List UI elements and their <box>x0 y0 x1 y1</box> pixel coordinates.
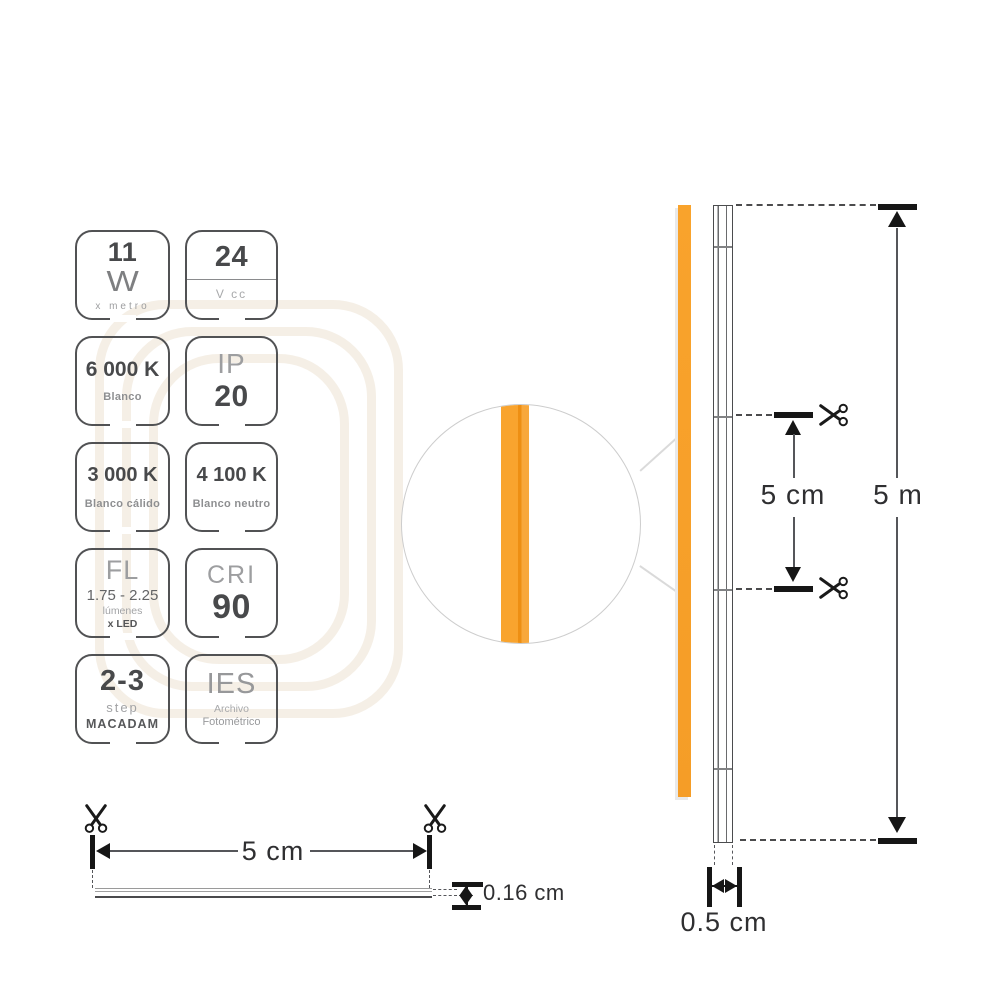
dim-5m-label: 5 m <box>868 479 928 511</box>
spec-badge-grid: 11 W x metro 24 V cc 6 000 K Blanco IP 2… <box>75 230 278 744</box>
magnifier-circle <box>401 404 641 644</box>
dim-5m-line <box>896 517 898 817</box>
dim-width-arrow-left <box>712 879 724 893</box>
cct-6000-value: 6 000 K <box>86 359 160 380</box>
led-strip-front <box>678 205 691 797</box>
dim-side-extension <box>92 870 93 888</box>
flux-caption2: x LED <box>108 619 138 630</box>
cri-value: 90 <box>212 590 251 624</box>
voltage-caption: V cc <box>216 288 247 300</box>
dim-5cm-arrow-up <box>785 420 801 435</box>
dim-5cm-label: 5 cm <box>758 479 828 511</box>
badge-luminous-flux: FL 1.75 - 2.25 lúmenes x LED <box>75 548 170 638</box>
badge-cri: CRI 90 <box>185 548 278 638</box>
dim-width-extension <box>714 845 715 865</box>
dashed-line-cut-top <box>736 414 772 416</box>
power-unit: W <box>106 268 138 297</box>
dim-width-extension <box>732 845 733 865</box>
dashed-line-bottom <box>740 839 876 841</box>
badge-ies-file: IES Archivo Fotométrico <box>185 654 278 744</box>
dim-width-arrow-right <box>725 879 737 893</box>
dim-5cm-line <box>793 434 795 478</box>
dim-width-right-bar <box>737 867 742 907</box>
dim-side-line <box>310 850 414 852</box>
macadam-value: 2-3 <box>100 667 145 696</box>
dim-side-left-bar <box>90 835 95 869</box>
dim-5m-bottom-tick <box>878 838 917 844</box>
scissors-icon <box>819 400 849 430</box>
dim-5cm-bottom-tick <box>774 586 813 592</box>
flux-value: 1.75 - 2.25 <box>87 588 159 603</box>
dim-5m-line <box>896 228 898 478</box>
dim-thickness-bottom-bar <box>452 905 481 910</box>
strip-joint-mark <box>714 416 732 418</box>
scissors-icon <box>420 804 450 834</box>
strip-joint-mark <box>714 589 732 591</box>
badge-cct-4100k: 4 100 K Blanco neutro <box>185 442 278 532</box>
cct-4100-value: 4 100 K <box>196 465 266 485</box>
dim-5m-arrow-down <box>888 817 906 833</box>
dim-side-arrow-right <box>413 843 427 859</box>
dim-thickness-label: 0.16 cm <box>483 880 565 906</box>
dim-5cm-arrow-down <box>785 567 801 582</box>
macadam-caption: step <box>106 701 139 714</box>
dim-5cm-top-tick <box>774 412 813 418</box>
magnifier-callout-line <box>640 565 679 593</box>
dim-5m-top-tick <box>878 204 917 210</box>
ies-caption2: Fotométrico <box>202 717 260 728</box>
spec-sheet: 11 W x metro 24 V cc 6 000 K Blanco IP 2… <box>0 0 1000 1000</box>
strip-joint-mark <box>714 768 732 770</box>
dim-5m-arrow-up <box>888 211 906 227</box>
badge-macadam: 2-3 step MACADAM <box>75 654 170 744</box>
ip-value: 20 <box>214 382 248 412</box>
dim-width-label: 0.5 cm <box>676 907 772 938</box>
scissors-icon <box>81 804 111 834</box>
ies-caption: Archivo <box>214 704 249 715</box>
badge-cct-3000k: 3 000 K Blanco cálido <box>75 442 170 532</box>
voltage-value: 24 <box>215 243 248 272</box>
cct-3000-caption: Blanco cálido <box>85 499 160 510</box>
strip-joint-mark <box>714 246 732 248</box>
badge-cct-6000k: 6 000 K Blanco <box>75 336 170 426</box>
dim-thickness-extension <box>433 895 457 896</box>
cct-6000-caption: Blanco <box>103 392 141 403</box>
dim-thickness-extension <box>433 889 457 890</box>
dim-side-label: 5 cm <box>239 836 307 867</box>
flux-label: FL <box>106 557 140 584</box>
led-strip-profile <box>713 205 733 843</box>
badge-voltage: 24 V cc <box>185 230 278 320</box>
magnifier-callout-line <box>639 435 679 471</box>
dim-5cm-line <box>793 517 795 567</box>
magnified-led-strip <box>501 405 529 643</box>
cri-label: CRI <box>207 563 256 588</box>
ies-label: IES <box>207 670 257 699</box>
scissors-icon <box>819 573 849 603</box>
power-value: 11 <box>108 239 138 266</box>
dashed-line-cut-bottom <box>736 588 772 590</box>
flux-caption: lúmenes <box>103 606 143 617</box>
dim-side-line <box>110 850 238 852</box>
dim-side-right-bar <box>427 835 432 869</box>
dashed-line-top <box>736 204 876 206</box>
power-caption: x metro <box>95 302 149 312</box>
voltage-divider <box>187 279 276 280</box>
led-strip-side-view <box>95 888 432 898</box>
badge-ip-rating: IP 20 <box>185 336 278 426</box>
cct-4100-caption: Blanco neutro <box>193 499 271 510</box>
badge-power: 11 W x metro <box>75 230 170 320</box>
dim-side-arrow-left <box>96 843 110 859</box>
ip-label: IP <box>217 350 245 378</box>
dim-side-extension <box>429 870 430 888</box>
dim-thickness-arrow-down <box>459 895 473 905</box>
cct-3000-value: 3 000 K <box>87 465 157 485</box>
macadam-caption2: MACADAM <box>86 718 159 731</box>
